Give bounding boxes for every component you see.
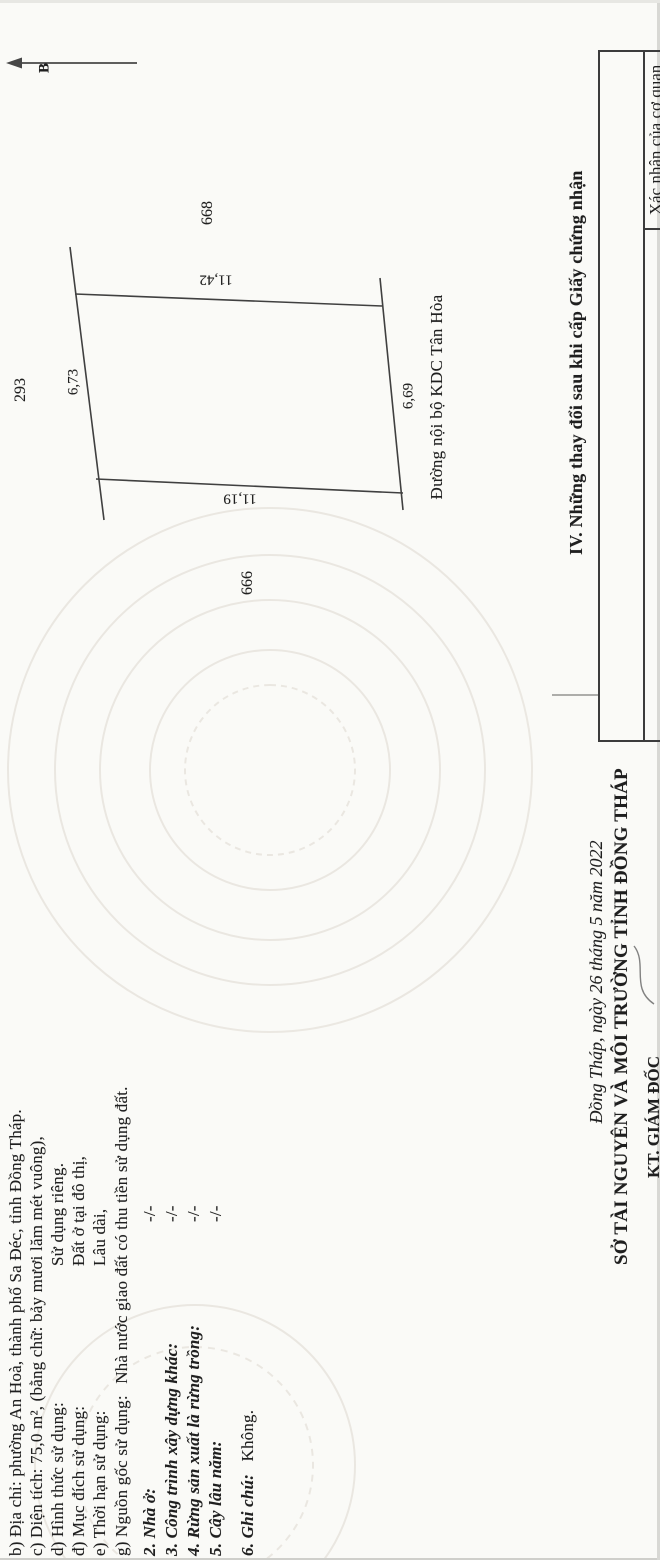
forest-line: 4. Rừng sản xuất là rừng trồng: -/- xyxy=(184,956,204,1556)
scan-edge-shadow-right xyxy=(0,0,660,3)
signature-date-line: Đồng Tháp, ngày 26 tháng 5 năm 2022 xyxy=(586,782,607,1182)
note-value: Không. xyxy=(238,1410,257,1462)
construction-value: -/- xyxy=(162,1205,182,1222)
usage-term-value: Lâu dài, xyxy=(90,1209,110,1266)
scanned-certificate-page: b) Địa chỉ: phường An Hoà, thành phố Sa … xyxy=(0,0,660,1560)
forest-value: -/- xyxy=(184,1205,204,1222)
land-origin-value: Nhà nước giao đất có thu tiền sử dụng đấ… xyxy=(112,1086,131,1383)
parcel-edge-right xyxy=(75,294,382,306)
edge-length-top: 6,73 xyxy=(66,369,83,395)
scan-artifact-line xyxy=(552,694,600,696)
perennial-label: 5. Cây lâu năm: xyxy=(206,1441,225,1556)
edge-length-left: 11,19 xyxy=(223,490,256,507)
usage-form-label: d) Hình thức sử dụng: xyxy=(48,1402,67,1556)
usage-form-value: Sử dụng riêng. xyxy=(48,1163,68,1266)
north-label: B xyxy=(37,63,54,73)
parcel-boundary-lines xyxy=(70,247,403,520)
house-value: -/- xyxy=(140,1205,160,1222)
signature-agency-line: SỞ TÀI NGUYÊN VÀ MÔI TRƯỜNG TỈNH ĐỒNG TH… xyxy=(611,815,633,1265)
neighbor-parcel-668: 668 xyxy=(199,201,217,225)
table-border-top xyxy=(598,50,600,742)
house-label: 2. Nhà ở: xyxy=(140,1488,159,1556)
signature-stroke xyxy=(634,946,654,1004)
confirmation-column-header: Xác nhận của cơ quan xyxy=(646,52,660,228)
rotated-page-stage: b) Địa chỉ: phường An Hoà, thành phố Sa … xyxy=(0,0,660,1560)
neighbor-parcel-293: 293 xyxy=(12,378,30,402)
area-line: c) Diện tích: 75,0 m², (bằng chữ: bảy mư… xyxy=(27,1136,47,1556)
construction-line: 3. Công trình xây dựng khác: -/- xyxy=(162,956,182,1556)
section-iv-title: IV. Những thay đổi sau khi cấp Giấy chứn… xyxy=(566,170,587,555)
construction-label: 3. Công trình xây dựng khác: xyxy=(162,1343,181,1556)
usage-purpose-label: đ) Mục đích sử dụng: xyxy=(69,1406,88,1556)
usage-form-line: d) Hình thức sử dụng: Sử dụng riêng. xyxy=(48,956,68,1556)
land-origin-label: g) Nguồn gốc sử dụng: xyxy=(112,1395,131,1556)
table-row-divider xyxy=(643,50,645,742)
signer-title-line: KT. GIÁM ĐỐC xyxy=(644,1017,660,1217)
address-line: b) Địa chỉ: phường An Hoà, thành phố Sa … xyxy=(6,1109,26,1556)
usage-term-line: e) Thời hạn sử dụng: Lâu dài, xyxy=(90,956,110,1556)
house-line: 2. Nhà ở: -/- xyxy=(140,956,160,1556)
neighbor-parcel-666: 666 xyxy=(239,571,257,595)
note-label: 6. Ghi chú: xyxy=(238,1474,257,1556)
usage-purpose-line: đ) Mục đích sử dụng: Đất ở tại đô thị, xyxy=(69,956,89,1556)
usage-purpose-value: Đất ở tại đô thị, xyxy=(69,1156,89,1266)
edge-length-bottom: 6,69 xyxy=(401,383,418,409)
land-origin-line: g) Nguồn gốc sử dụng: Nhà nước giao đất … xyxy=(112,1086,132,1556)
usage-term-label: e) Thời hạn sử dụng: xyxy=(90,1410,109,1556)
table-column-divider xyxy=(643,228,660,230)
note-line: 6. Ghi chú: Không. xyxy=(238,1410,258,1556)
edge-length-right: 11,42 xyxy=(199,271,232,288)
forest-label: 4. Rừng sản xuất là rừng trồng: xyxy=(184,1325,203,1556)
table-border-left xyxy=(598,740,660,742)
perennial-line: 5. Cây lâu năm: -/- xyxy=(206,956,226,1556)
road-label: Đường nội bộ KDC Tân Hòa xyxy=(427,295,447,500)
perennial-value: -/- xyxy=(206,1205,226,1222)
north-arrow-icon xyxy=(6,58,137,69)
